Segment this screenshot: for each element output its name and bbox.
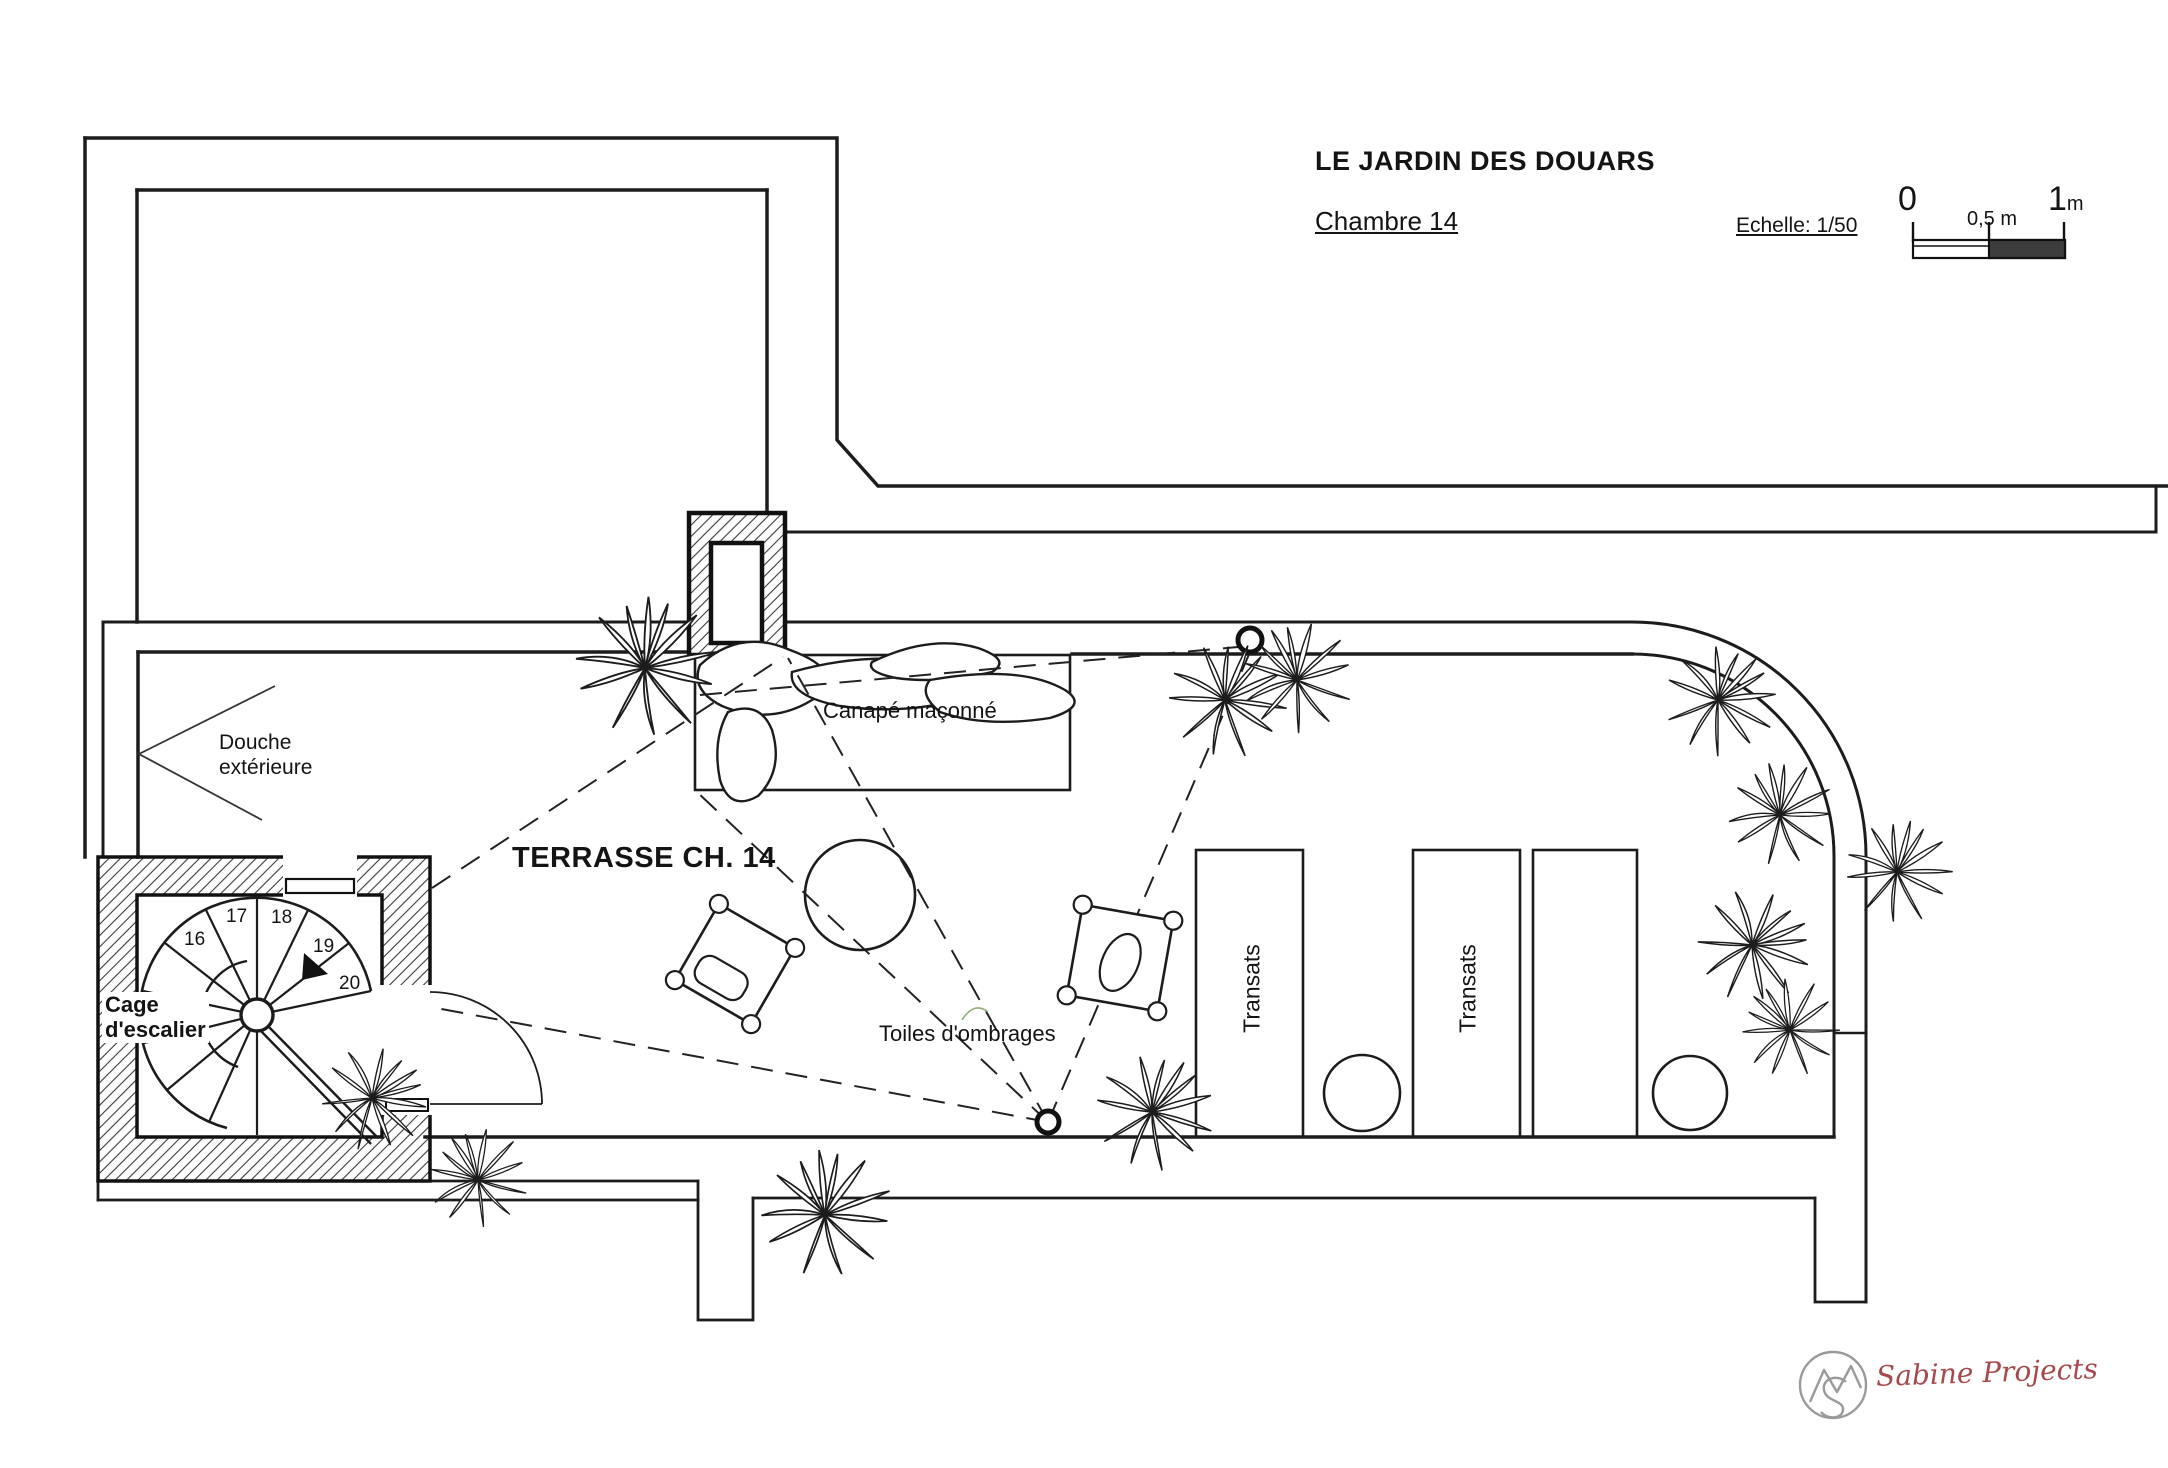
green-accent-arc (962, 1008, 988, 1020)
stair-step-18: 18 (271, 907, 292, 929)
sun-lounger-label-1: Transats (1239, 909, 1266, 1069)
stair-step-16: 16 (184, 929, 205, 951)
scale-zero: 0 (1898, 180, 1917, 219)
floor-plan-page: LE JARDIN DES DOUARS Chambre 14 Echelle:… (0, 0, 2168, 1468)
stair-step-19: 19 (313, 936, 334, 958)
stair-center-post (241, 999, 273, 1031)
stair-step-17: 17 (226, 906, 247, 928)
logo-monogram-icon (1800, 1352, 1866, 1418)
scale-label: Echelle: 1/50 (1736, 214, 1857, 238)
shower-label-line1: Douche (219, 731, 291, 755)
drawing-title: LE JARDIN DES DOUARS (1315, 146, 1655, 177)
scale-one-unit: m (2067, 193, 2084, 215)
scale-half: 0,5 m (1952, 208, 2032, 231)
scale-one-value: 1 (2048, 180, 2067, 218)
stairwell-label-line2: d'escalier (105, 1018, 206, 1043)
scale-one: 1m (2048, 180, 2084, 219)
sail-anchor-bottom (1037, 1111, 1059, 1133)
furniture (663, 840, 1727, 1137)
sail-anchor-top (1238, 628, 1262, 652)
sun-lounger-3 (1533, 850, 1637, 1137)
side-table-2 (1653, 1056, 1727, 1130)
stairwell-label-line1: Cage (105, 993, 206, 1018)
sun-lounger-label-2: Transats (1455, 909, 1482, 1069)
armchair-2 (1056, 894, 1183, 1021)
side-table-1 (1324, 1055, 1400, 1131)
shade-sails-label: Toiles d'ombrages (879, 1021, 1056, 1047)
armchair-1 (663, 892, 808, 1037)
chimney-flue (689, 513, 785, 655)
room-label: TERRASSE CH. 14 (512, 842, 776, 875)
stairwell-label: Cage d'escalier (102, 992, 209, 1043)
sofa-label: Canapé maçonné (823, 698, 997, 724)
stair-step-20: 20 (339, 973, 360, 995)
round-table (805, 840, 915, 950)
drawing-subtitle: Chambre 14 (1315, 206, 1458, 237)
shower-label-line2: extérieure (219, 756, 312, 780)
